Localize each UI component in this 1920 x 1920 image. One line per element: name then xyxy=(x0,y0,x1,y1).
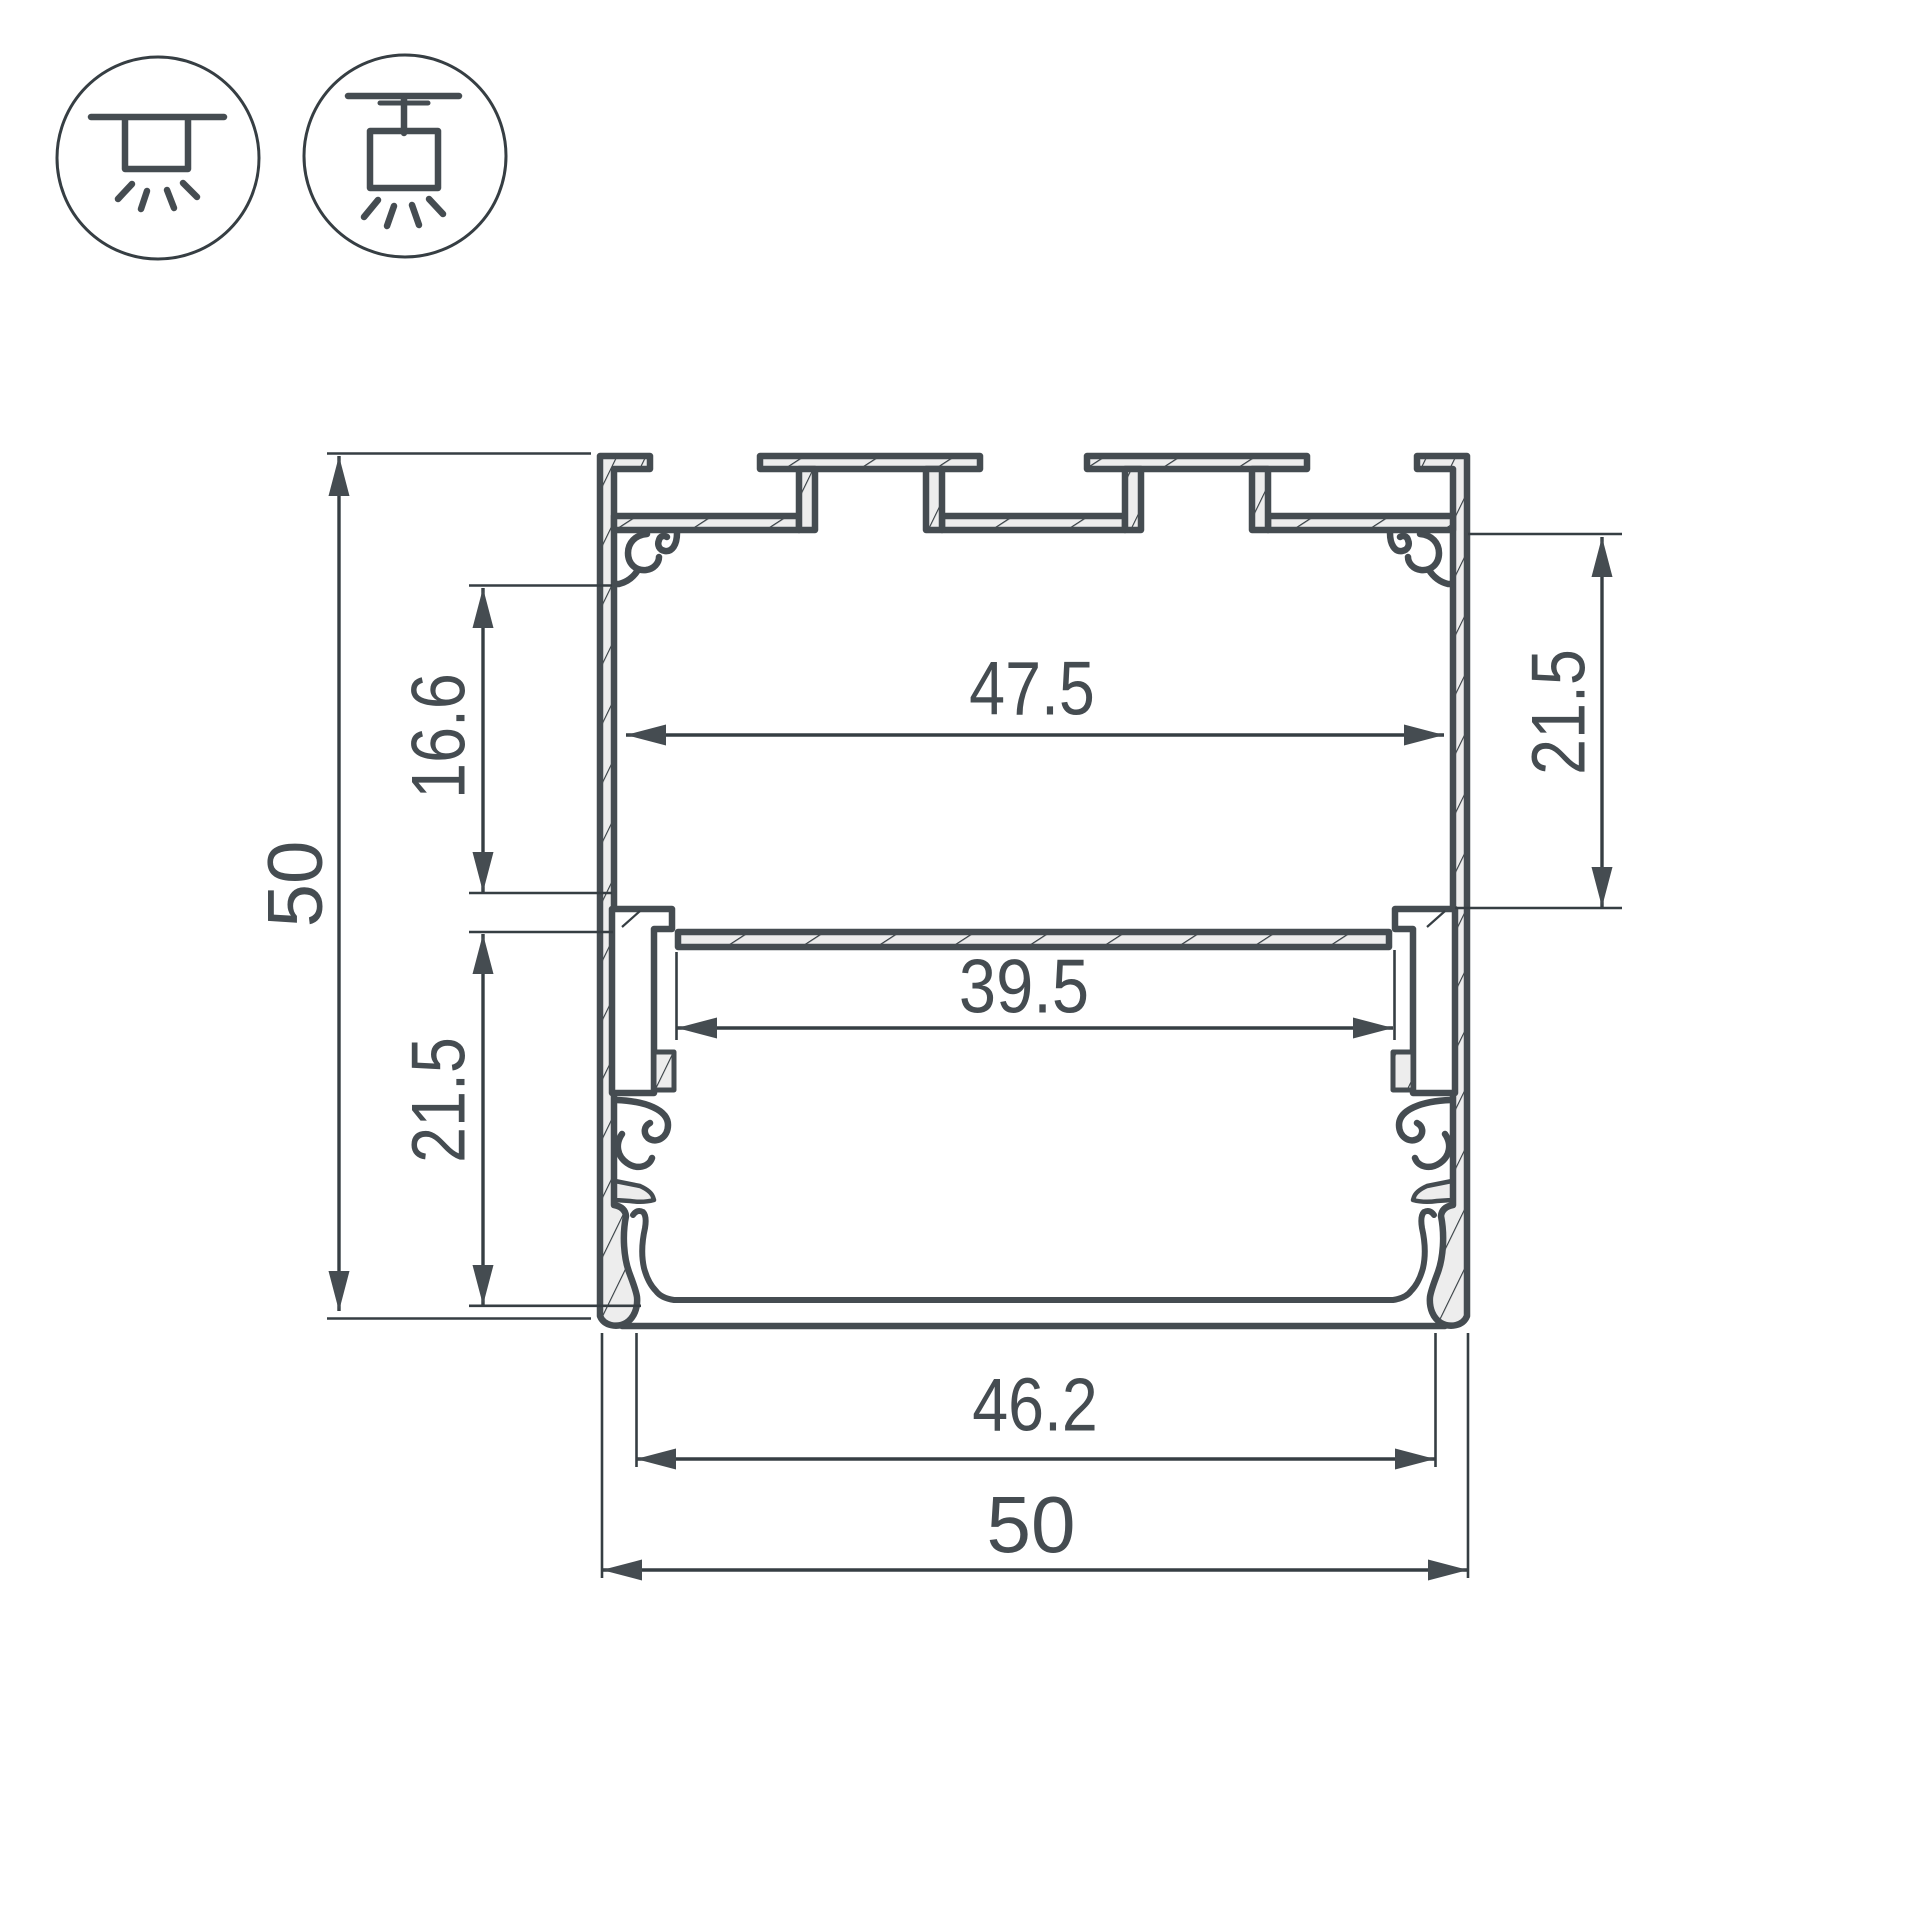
svg-text:39.5: 39.5 xyxy=(959,945,1089,1030)
svg-text:50: 50 xyxy=(987,1480,1076,1569)
svg-text:16.6: 16.6 xyxy=(396,673,481,799)
svg-text:21.5: 21.5 xyxy=(1516,649,1601,775)
svg-text:47.5: 47.5 xyxy=(969,646,1095,731)
svg-text:50: 50 xyxy=(250,841,338,928)
svg-text:46.2: 46.2 xyxy=(972,1363,1098,1447)
svg-text:21.5: 21.5 xyxy=(396,1037,481,1163)
